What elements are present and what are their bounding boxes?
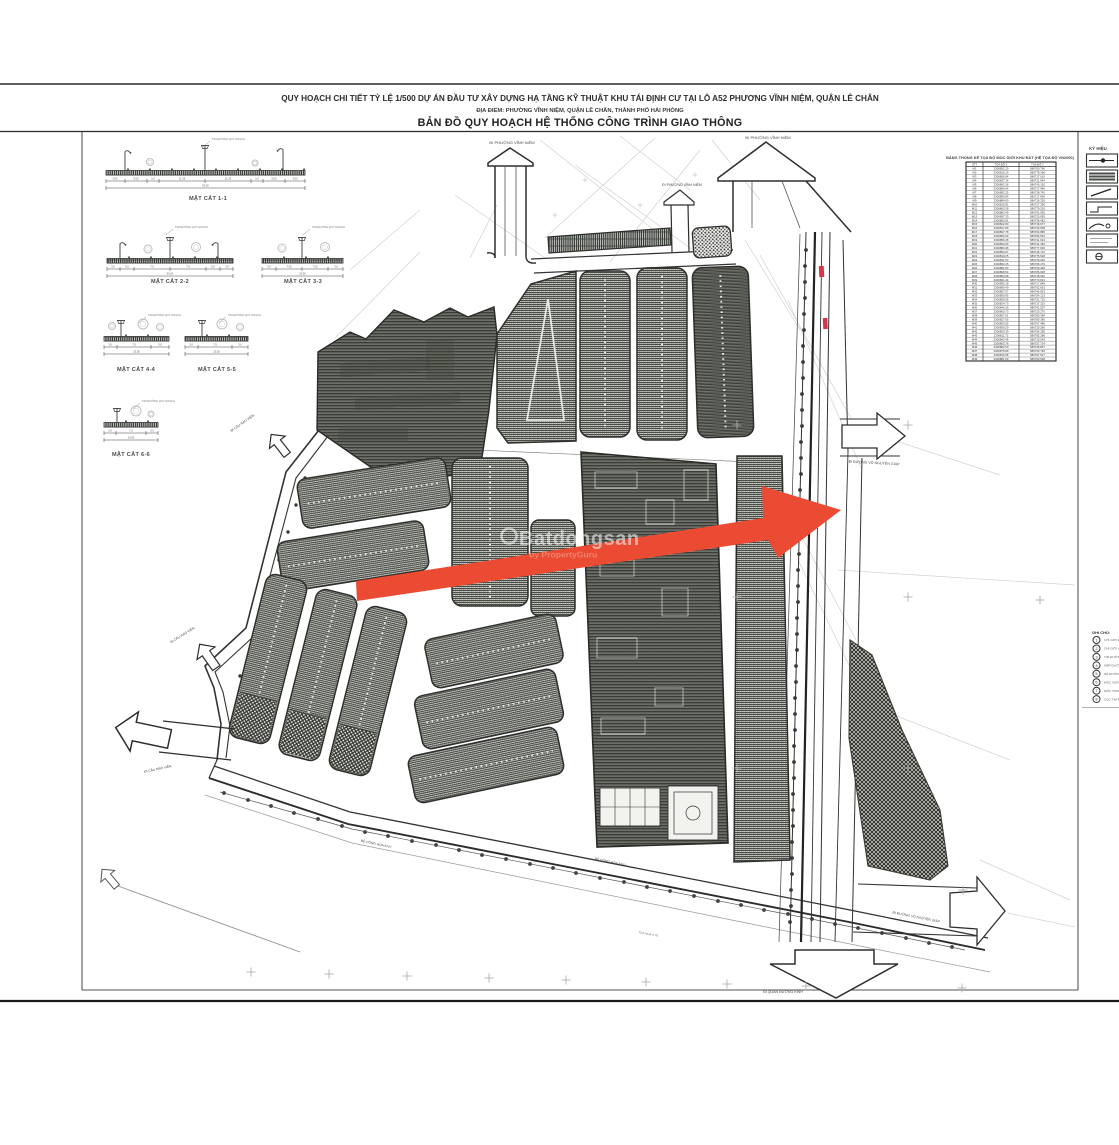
- svg-text:MẶT CẮT 3-3: MẶT CẮT 3-3: [284, 277, 322, 285]
- svg-text:10.50: 10.50: [128, 436, 135, 440]
- svg-text:MẶT CẮT 1-1: MẶT CẮT 1-1: [189, 194, 227, 202]
- svg-text:BẢNG THỐNG KÊ TỌA ĐỘ MỐC GIỚI: BẢNG THỐNG KÊ TỌA ĐỘ MỐC GIỚI KHU ĐẤT (H…: [946, 155, 1074, 160]
- svg-text:ĐI PHƯỜNG VĨNH NIỆM: ĐI PHƯỜNG VĨNH NIỆM: [489, 140, 534, 145]
- svg-text:13.50: 13.50: [133, 350, 140, 354]
- svg-text:20.50: 20.50: [299, 272, 306, 276]
- svg-text:2306881.60: 2306881.60: [994, 357, 1009, 361]
- svg-text:CHỈ GIỚI XÂY DỰNG: CHỈ GIỚI XÂY DỰNG: [1104, 646, 1119, 651]
- svg-text:3.0: 3.0: [267, 265, 271, 269]
- svg-text:3.0: 3.0: [158, 343, 162, 347]
- svg-text:MÉP ĐƯỜNG XE CHẠY: MÉP ĐƯỜNG XE CHẠY: [1104, 663, 1119, 668]
- svg-text:5.00: 5.00: [133, 177, 139, 181]
- svg-text:TIM ĐƯỜNG QUY HOẠCH: TIM ĐƯỜNG QUY HOẠCH: [1104, 654, 1119, 659]
- svg-text:1.0: 1.0: [255, 177, 259, 181]
- svg-text:M49: M49: [972, 357, 978, 361]
- svg-text:30.50: 30.50: [167, 272, 174, 276]
- svg-text:HÈ ĐƯỜNG QUY HOẠCH: HÈ ĐƯỜNG QUY HOẠCH: [1104, 671, 1119, 676]
- svg-text:3.00: 3.00: [292, 177, 298, 181]
- svg-text:2.0: 2.0: [108, 429, 112, 433]
- svg-text:MẶT CẮT 5-5: MẶT CẮT 5-5: [198, 365, 236, 373]
- svg-text:MẶT CẮT 4-4: MẶT CẮT 4-4: [117, 365, 156, 373]
- svg-text:CHỈ GIỚI ĐƯỜNG ĐỎ: CHỈ GIỚI ĐƯỜNG ĐỎ: [1104, 637, 1119, 642]
- svg-text:7.25: 7.25: [286, 265, 292, 269]
- svg-text:7.25: 7.25: [312, 265, 318, 269]
- svg-text:3.0: 3.0: [225, 265, 229, 269]
- svg-text:1.0: 1.0: [151, 177, 155, 181]
- svg-text:3.00: 3.00: [112, 177, 118, 181]
- svg-text:Batdongsan: Batdongsan: [519, 528, 640, 550]
- svg-text:11.25: 11.25: [225, 177, 232, 181]
- svg-text:MỐC THAM CHIẾU: MỐC THAM CHIẾU: [1104, 688, 1119, 693]
- svg-text:3.0: 3.0: [238, 343, 242, 347]
- svg-text:CỌC TIM ĐƯỜNG: CỌC TIM ĐƯỜNG: [1104, 696, 1119, 701]
- svg-text:MẶT CẮT 6-6: MẶT CẮT 6-6: [112, 450, 150, 458]
- svg-text:by PropertyGuru: by PropertyGuru: [529, 550, 597, 560]
- svg-text:7.5: 7.5: [186, 265, 190, 269]
- svg-text:3.0: 3.0: [111, 265, 115, 269]
- svg-text:5.00: 5.00: [271, 177, 277, 181]
- svg-text:13.50: 13.50: [213, 350, 220, 354]
- svg-text:GHI CHÚ:: GHI CHÚ:: [1092, 630, 1110, 635]
- svg-text:BẢN ĐỒ QUY HOẠCH HỆ THỐNG CÔNG: BẢN ĐỒ QUY HOẠCH HỆ THỐNG CÔNG TRÌNH GIA…: [418, 115, 743, 129]
- svg-text:3.0: 3.0: [150, 429, 154, 433]
- svg-text:3.0: 3.0: [334, 265, 338, 269]
- svg-text:586760.508: 586760.508: [1030, 357, 1045, 361]
- svg-text:11.25: 11.25: [179, 177, 186, 181]
- svg-text:MẶT CẮT 2-2: MẶT CẮT 2-2: [151, 277, 189, 285]
- svg-text:ĐI PHƯỜNG VĨNH NIỆM: ĐI PHƯỜNG VĨNH NIỆM: [745, 135, 790, 140]
- svg-text:MỐC GIỚI QUY HOẠCH: MỐC GIỚI QUY HOẠCH: [1104, 679, 1119, 684]
- svg-text:7.5: 7.5: [132, 343, 136, 347]
- svg-text:ĐỊA ĐIỂM: PHƯỜNG VĨNH NIỆM, QU: ĐỊA ĐIỂM: PHƯỜNG VĨNH NIỆM, QUẬN LÊ CHÂN…: [476, 106, 684, 114]
- svg-text:7.5: 7.5: [150, 265, 154, 269]
- svg-text:3.0: 3.0: [189, 343, 193, 347]
- svg-text:7.5: 7.5: [213, 343, 217, 347]
- svg-text:50.50: 50.50: [202, 184, 209, 188]
- svg-text:ĐI PHƯỜNG VĨNH NIỆM: ĐI PHƯỜNG VĨNH NIỆM: [662, 182, 702, 187]
- svg-text:QUY HOẠCH CHI TIẾT TỶ LỆ 1/500: QUY HOẠCH CHI TIẾT TỶ LỆ 1/500 DỰ ÁN ĐẦU…: [281, 92, 879, 103]
- svg-text:5.0: 5.0: [211, 265, 215, 269]
- svg-text:3.0: 3.0: [108, 343, 112, 347]
- svg-text:KÝ HIỆU: KÝ HIỆU: [1089, 146, 1107, 151]
- svg-text:7.5: 7.5: [129, 429, 133, 433]
- svg-text:ĐI QUÁN ĐƯỜNG KINH: ĐI QUÁN ĐƯỜNG KINH: [763, 989, 803, 994]
- svg-text:5.0: 5.0: [125, 265, 129, 269]
